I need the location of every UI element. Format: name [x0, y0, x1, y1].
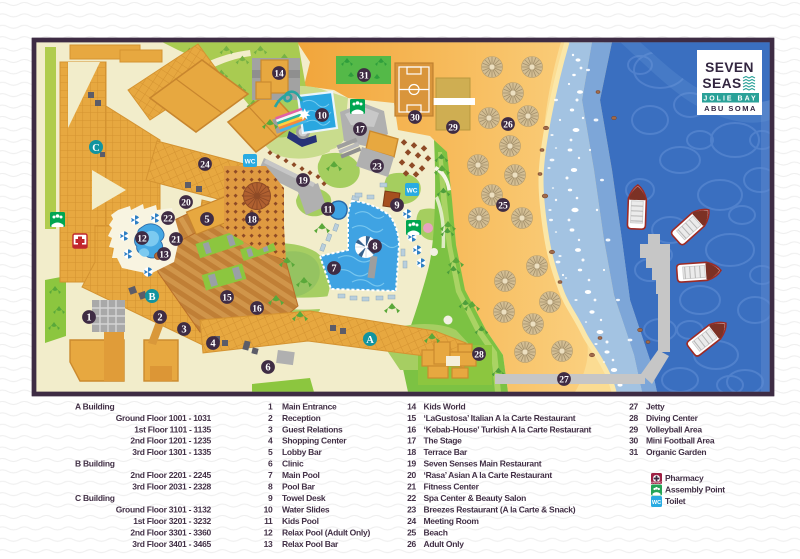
svg-text:2nd Floor 3301 - 3360: 2nd Floor 3301 - 3360	[130, 527, 211, 537]
svg-text:29: 29	[448, 122, 458, 133]
svg-text:SEVEN: SEVEN	[705, 60, 754, 75]
svg-text:21: 21	[171, 234, 181, 245]
svg-text:Guest Relations: Guest Relations	[282, 424, 343, 434]
svg-text:Toilet: Toilet	[665, 496, 686, 506]
svg-text:Clinic: Clinic	[282, 459, 304, 469]
svg-text:Pharmacy: Pharmacy	[665, 473, 704, 483]
svg-text:SEAS: SEAS	[702, 76, 741, 91]
svg-text:Assembly Point: Assembly Point	[665, 485, 725, 495]
svg-text:4: 4	[210, 338, 216, 349]
svg-text:Diving Center: Diving Center	[646, 413, 699, 423]
svg-text:22: 22	[163, 213, 173, 224]
svg-text:Fitness Center: Fitness Center	[424, 482, 480, 492]
svg-text:2nd Floor 2201 - 2245: 2nd Floor 2201 - 2245	[130, 470, 211, 480]
svg-text:25: 25	[498, 200, 508, 211]
svg-text:17: 17	[407, 436, 416, 446]
svg-text:10: 10	[317, 110, 327, 121]
svg-text:15: 15	[222, 292, 232, 303]
svg-text:Beach: Beach	[424, 527, 448, 537]
svg-text:Terrace Bar: Terrace Bar	[424, 447, 469, 457]
svg-text:10: 10	[264, 505, 273, 515]
svg-text:24: 24	[200, 159, 210, 170]
svg-text:Water Slides: Water Slides	[282, 505, 330, 515]
svg-text:1: 1	[86, 312, 91, 323]
svg-text:1st Floor 3201 - 3232: 1st Floor 3201 - 3232	[133, 516, 211, 526]
svg-text:7: 7	[331, 263, 336, 274]
svg-text:22: 22	[407, 493, 416, 503]
svg-text:6: 6	[265, 362, 270, 373]
svg-text:14: 14	[274, 68, 284, 79]
svg-text:13: 13	[159, 249, 169, 260]
svg-text:B Building: B Building	[75, 459, 115, 469]
svg-text:3rd Floor 3401 - 3465: 3rd Floor 3401 - 3465	[132, 539, 211, 549]
svg-text:Lobby Bar: Lobby Bar	[282, 447, 322, 457]
svg-text:2: 2	[268, 413, 273, 423]
svg-text:C: C	[92, 143, 100, 154]
svg-text:8: 8	[268, 482, 273, 492]
svg-text:Pool Bar: Pool Bar	[282, 482, 316, 492]
svg-text:C Building: C Building	[75, 493, 115, 503]
svg-text:Breezes Restaurant (A la Carte: Breezes Restaurant (A la Carte & Snack)	[424, 505, 576, 515]
svg-text:12: 12	[264, 527, 273, 537]
svg-text:Towel Desk: Towel Desk	[282, 493, 326, 503]
svg-text:16: 16	[407, 424, 416, 434]
svg-text:9: 9	[268, 493, 273, 503]
svg-text:21: 21	[407, 482, 416, 492]
svg-text:1st Floor 1101 - 1135: 1st Floor 1101 - 1135	[134, 424, 211, 434]
svg-text:3: 3	[181, 324, 186, 335]
svg-text:Meeting Room: Meeting Room	[424, 516, 480, 526]
svg-text:11: 11	[264, 516, 273, 526]
svg-text:28: 28	[474, 349, 484, 360]
svg-text:13: 13	[264, 539, 273, 549]
svg-text:23: 23	[372, 161, 382, 172]
svg-text:‘LaGustosa’ Italian A la Carte: ‘LaGustosa’ Italian A la Carte Restauran…	[424, 413, 576, 423]
svg-text:4: 4	[268, 436, 273, 446]
svg-text:5: 5	[268, 447, 273, 457]
svg-text:Jetty: Jetty	[646, 401, 665, 411]
svg-text:Ground Floor 1001 - 1031: Ground Floor 1001 - 1031	[116, 413, 212, 423]
svg-text:3rd Floor 1301 - 1335: 3rd Floor 1301 - 1335	[132, 447, 211, 457]
svg-text:Shopping Center: Shopping Center	[282, 436, 347, 446]
svg-text:WC: WC	[245, 159, 256, 166]
svg-text:ABU SOMA: ABU SOMA	[704, 104, 757, 113]
svg-text:PHARMACY: PHARMACY	[649, 481, 664, 485]
svg-text:JOLIE BAY: JOLIE BAY	[703, 96, 757, 103]
svg-text:Kids Pool: Kids Pool	[282, 516, 319, 526]
svg-text:Mini Football Area: Mini Football Area	[646, 436, 715, 446]
svg-text:Main Entrance: Main Entrance	[282, 401, 337, 411]
svg-text:27: 27	[629, 401, 638, 411]
svg-text:Organic Garden: Organic Garden	[646, 447, 706, 457]
svg-text:Relax Pool Bar: Relax Pool Bar	[282, 539, 339, 549]
svg-text:26: 26	[407, 539, 416, 549]
svg-text:9: 9	[394, 200, 399, 211]
svg-text:18: 18	[407, 447, 416, 457]
svg-text:12: 12	[137, 233, 147, 244]
svg-text:WC: WC	[652, 500, 661, 506]
svg-text:20: 20	[181, 197, 191, 208]
svg-text:A: A	[366, 335, 374, 346]
svg-text:23: 23	[407, 505, 416, 515]
svg-text:31: 31	[629, 447, 638, 457]
svg-text:2nd Floor 1201 - 1235: 2nd Floor 1201 - 1235	[130, 436, 211, 446]
svg-text:6: 6	[268, 459, 273, 469]
svg-text:A Building: A Building	[75, 401, 114, 411]
svg-text:17: 17	[355, 124, 365, 135]
svg-text:WC: WC	[407, 188, 418, 195]
svg-text:25: 25	[407, 527, 416, 537]
svg-text:1: 1	[268, 401, 273, 411]
svg-text:7: 7	[268, 470, 273, 480]
svg-text:20: 20	[407, 470, 416, 480]
svg-text:27: 27	[559, 374, 569, 385]
svg-text:3rd Floor 2031 - 2328: 3rd Floor 2031 - 2328	[132, 482, 211, 492]
svg-text:Ground Floor 3101 - 3132: Ground Floor 3101 - 3132	[116, 505, 212, 515]
svg-text:Kids World: Kids World	[424, 401, 466, 411]
svg-text:11: 11	[323, 204, 332, 215]
svg-text:Main Pool: Main Pool	[282, 470, 320, 480]
svg-text:5: 5	[204, 214, 209, 225]
svg-text:‘Kebab-House’ Turkish A la Car: ‘Kebab-House’ Turkish A la Carte Restaur…	[424, 424, 592, 434]
svg-text:Spa Center & Beauty Salon: Spa Center & Beauty Salon	[424, 493, 527, 503]
svg-text:2: 2	[157, 312, 162, 323]
svg-text:24: 24	[407, 516, 416, 526]
svg-text:26: 26	[503, 119, 513, 130]
svg-text:19: 19	[298, 175, 308, 186]
svg-text:30: 30	[629, 436, 638, 446]
svg-text:Relax Pool (Adult Only): Relax Pool (Adult Only)	[282, 527, 370, 537]
svg-text:Adult Only: Adult Only	[424, 539, 465, 549]
svg-text:31: 31	[359, 70, 369, 81]
svg-text:3: 3	[268, 424, 273, 434]
svg-text:30: 30	[410, 112, 420, 123]
svg-text:Reception: Reception	[282, 413, 321, 423]
svg-text:18: 18	[247, 214, 257, 225]
svg-text:Volleyball Area: Volleyball Area	[646, 424, 702, 434]
svg-text:29: 29	[629, 424, 638, 434]
svg-text:Seven Senses Main Restaurant: Seven Senses Main Restaurant	[424, 459, 542, 469]
svg-text:28: 28	[629, 413, 638, 423]
svg-text:8: 8	[372, 241, 377, 252]
svg-text:‘Rasa’ Asian A la Carte Restau: ‘Rasa’ Asian A la Carte Restaurant	[424, 470, 553, 480]
svg-text:19: 19	[407, 459, 416, 469]
svg-text:16: 16	[252, 303, 262, 314]
svg-text:B: B	[148, 292, 155, 303]
svg-text:15: 15	[407, 413, 416, 423]
svg-text:The Stage: The Stage	[424, 436, 463, 446]
svg-text:14: 14	[407, 401, 416, 411]
